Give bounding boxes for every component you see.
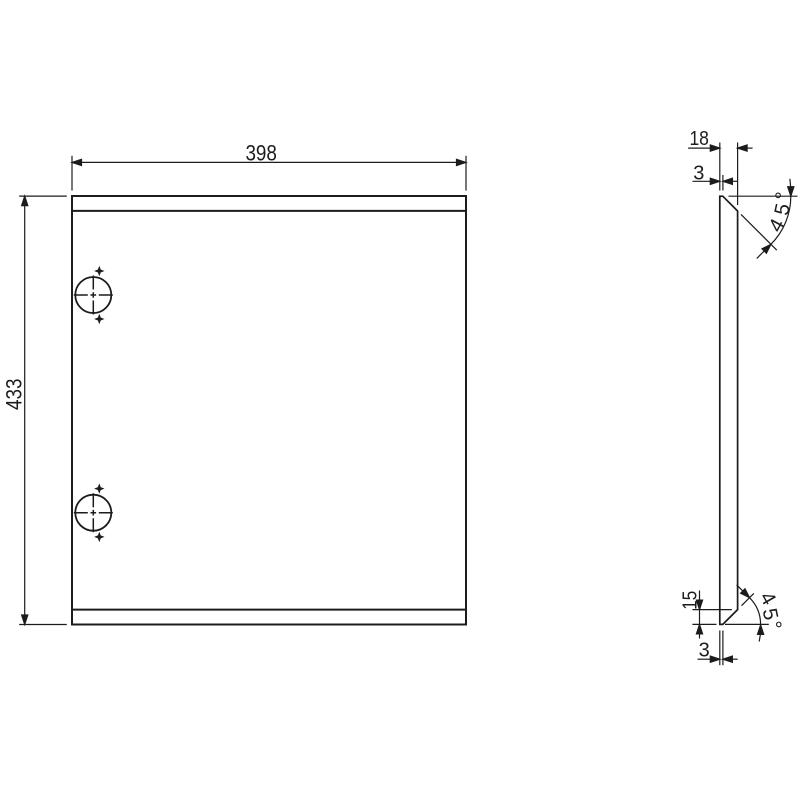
svg-text:°: ° xyxy=(763,620,786,628)
svg-text:15: 15 xyxy=(679,591,701,610)
svg-text:3: 3 xyxy=(693,162,704,184)
svg-text:398: 398 xyxy=(245,140,277,165)
svg-text:18: 18 xyxy=(689,128,709,150)
svg-text:°: ° xyxy=(771,191,794,200)
svg-text:433: 433 xyxy=(2,379,27,411)
svg-text:3: 3 xyxy=(699,640,710,662)
